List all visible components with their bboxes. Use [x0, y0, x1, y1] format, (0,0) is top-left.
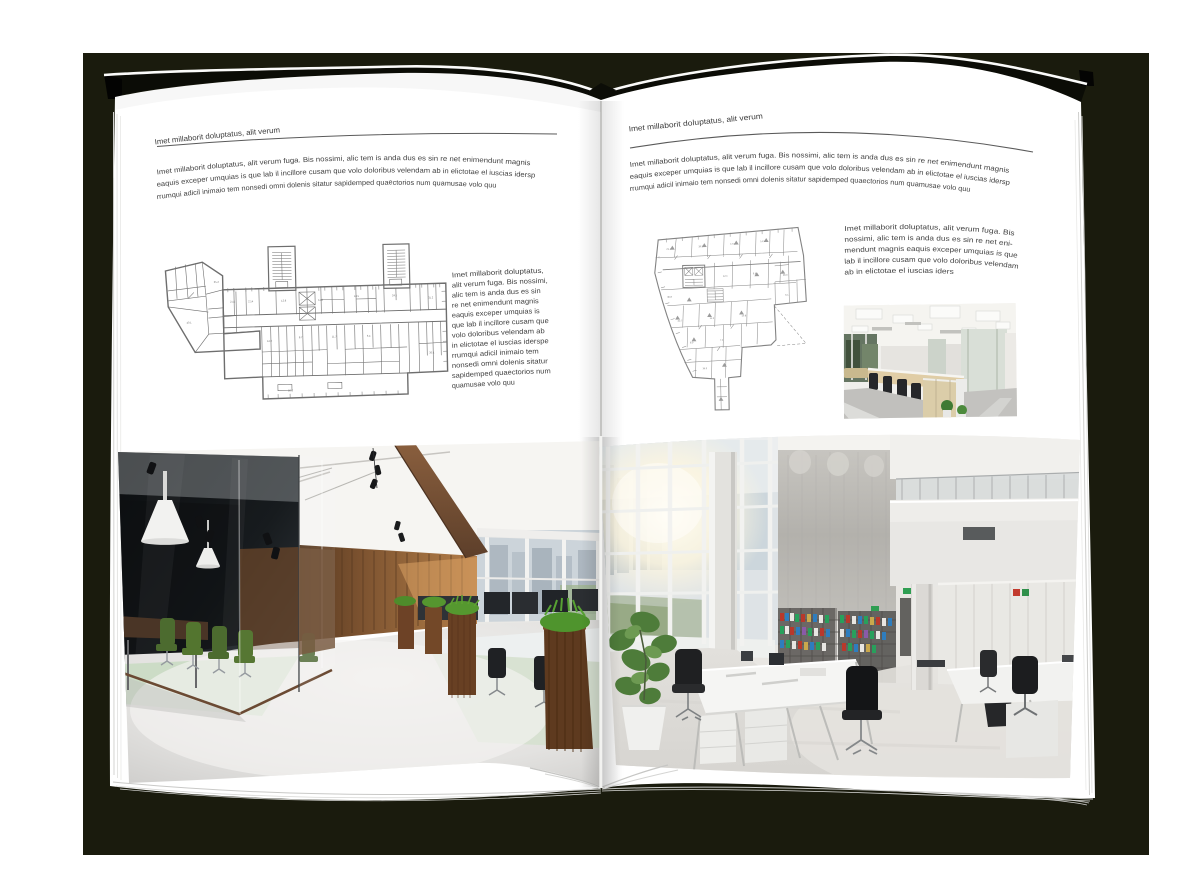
- svg-text:22.7: 22.7: [678, 319, 683, 322]
- svg-text:10.8: 10.8: [742, 314, 747, 317]
- svg-text:30.1: 30.1: [429, 350, 435, 354]
- svg-text:18.5: 18.5: [354, 294, 360, 298]
- svg-text:28.3: 28.3: [783, 274, 788, 277]
- svg-text:36.8: 36.8: [667, 296, 672, 299]
- svg-text:24.1: 24.1: [392, 293, 398, 297]
- svg-text:2.14: 2.14: [248, 299, 254, 303]
- svg-text:11.2: 11.2: [710, 317, 715, 320]
- svg-text:2.15: 2.15: [230, 300, 236, 304]
- svg-text:21.4: 21.4: [666, 248, 671, 251]
- svg-text:86.3: 86.3: [288, 388, 294, 392]
- svg-text:12.4: 12.4: [723, 275, 728, 278]
- svg-text:14.9: 14.9: [760, 240, 765, 243]
- svg-text:18.2: 18.2: [698, 245, 703, 248]
- svg-text:40.1: 40.1: [187, 320, 193, 324]
- svg-text:11.7: 11.7: [332, 334, 337, 338]
- svg-text:17.6: 17.6: [730, 243, 735, 246]
- svg-text:16.3: 16.3: [702, 367, 707, 370]
- svg-text:35.2: 35.2: [214, 280, 220, 284]
- svg-text:12.8: 12.8: [281, 298, 287, 302]
- svg-text:11.8: 11.8: [318, 298, 323, 302]
- svg-text:8.7: 8.7: [299, 335, 303, 339]
- svg-text:14.6: 14.6: [267, 339, 273, 343]
- svg-text:31.2: 31.2: [428, 295, 434, 299]
- svg-text:6.4: 6.4: [367, 334, 371, 338]
